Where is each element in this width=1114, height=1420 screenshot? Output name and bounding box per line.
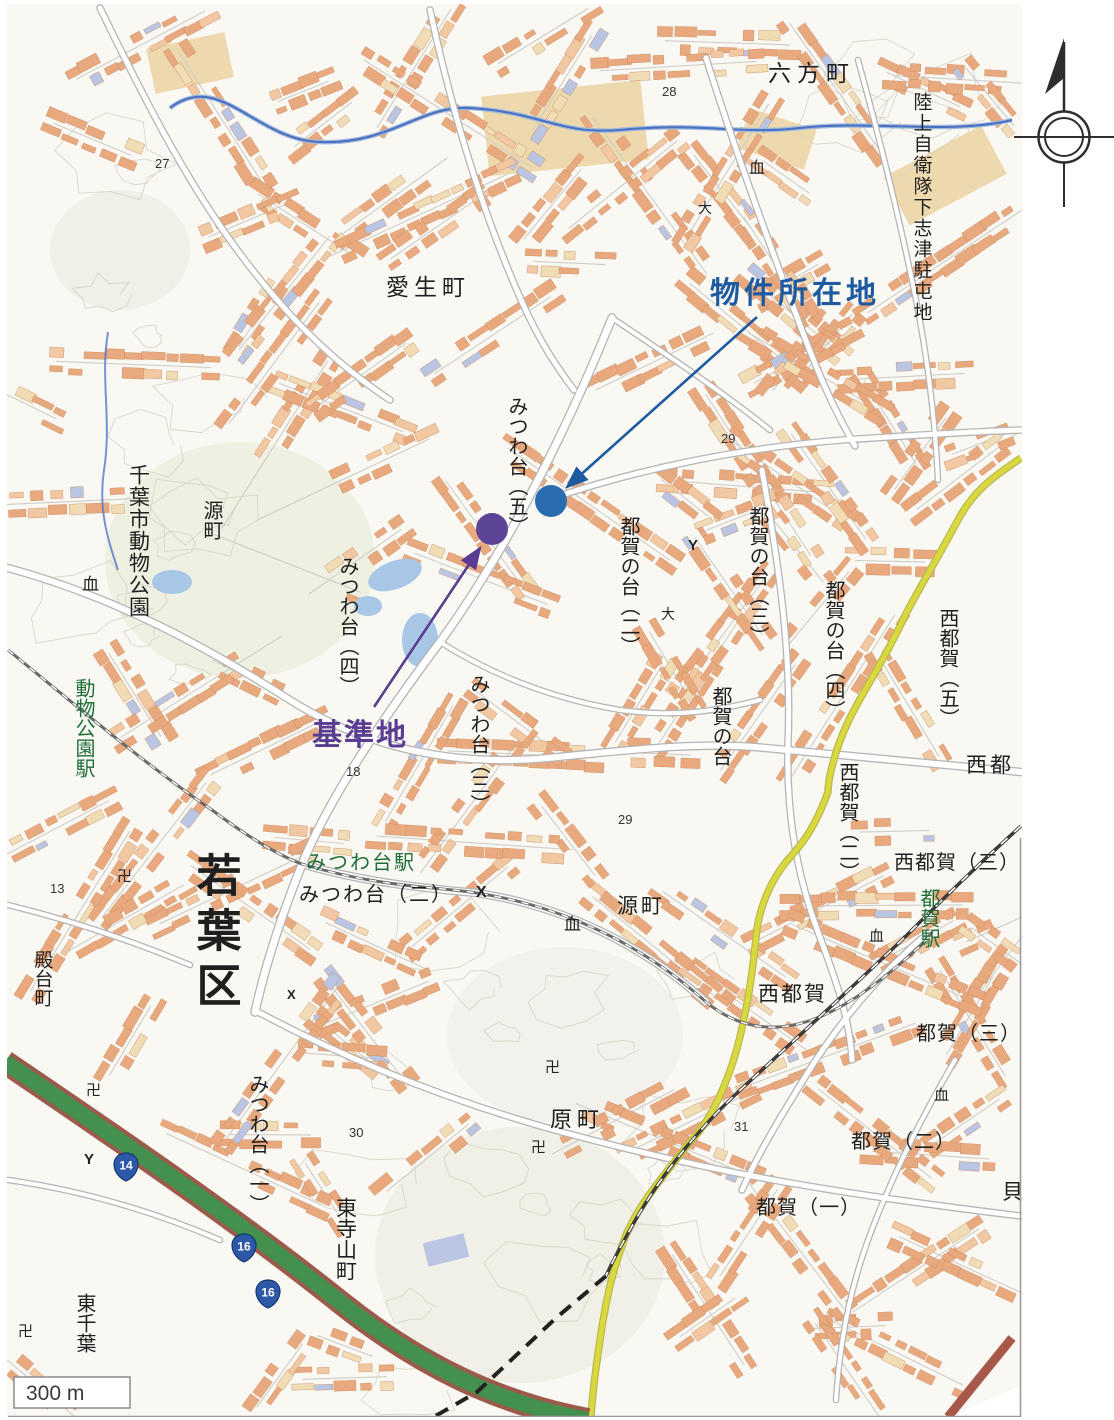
map-label: みつわ台︵一︶ [246,1074,269,1214]
map-label: 都賀駅 [917,888,940,949]
map-label: みつわ台︵三︶ [467,674,490,814]
scale-bar: 300 m [14,1377,130,1408]
map-label: 西都 [966,754,1014,777]
map-symbol: X [476,884,487,901]
map-symbol: 卍 [117,868,132,885]
map-symbol: X [287,987,296,1002]
route-number: 16 [237,1240,251,1254]
map-label: みつわ台（二） [299,883,453,906]
route-number: 14 [119,1159,133,1173]
spot-elevation: 29 [721,431,735,446]
property-location-dot [535,485,567,517]
spot-elevation: 29 [618,812,632,827]
map-label: 西都賀 [758,983,827,1006]
pond [152,570,192,594]
map-label: 西都賀︵五︶ [936,608,959,728]
map-label: 原町 [550,1107,604,1132]
map-label: 都賀（三） [916,1022,1021,1045]
map-symbol: 卍 [531,1139,546,1156]
map-symbol: Y [688,537,698,554]
map-label: 源町 [617,895,665,918]
map-label: 動物公園駅 [72,678,95,779]
spot-elevation: 28 [662,84,676,99]
north-compass-icon [1014,38,1114,207]
topographic-map: 六方町陸上自衛隊下志津駐屯地愛生町みつわ台︵五︶都賀の台︵二︶都賀の台︵三︶都賀… [0,0,1114,1420]
map-label: 西都賀（三） [894,851,1020,874]
map-symbol: 血 [749,159,765,177]
map-symbol: 血 [564,915,581,934]
spot-elevation: 27 [155,156,169,171]
spot-elevation: 30 [349,1125,363,1140]
map-symbol: 血 [869,928,884,945]
map-label: 源町 [200,500,223,540]
map-symbol: 血 [82,575,99,594]
map-page: 六方町陸上自衛隊下志津駐屯地愛生町みつわ台︵五︶都賀の台︵二︶都賀の台︵三︶都賀… [0,0,1114,1420]
map-symbol: 卍 [545,1059,560,1076]
map-label: 愛生町 [386,274,470,300]
map-label: 都賀（二） [851,1130,956,1153]
map-label: 千葉市動物公園 [127,464,151,618]
map-symbol: 血 [934,1087,949,1104]
map-label: 陸上自衛隊下志津駐屯地 [911,92,933,323]
map-label: 西都賀︵二︶ [836,762,859,882]
spot-elevation: 31 [734,1119,748,1134]
map-symbol: 卍 [86,1082,101,1099]
map-label: 若葉区 [190,852,243,1017]
map-label: 都賀の台︵二︶ [617,516,640,656]
map-label: 殿台町 [32,950,54,1007]
route-number: 16 [261,1286,275,1300]
map-label: 東寺山町 [334,1197,358,1281]
map-label: 六方町 [768,60,855,86]
map-canvas: 六方町陸上自衛隊下志津駐屯地愛生町みつわ台︵五︶都賀の台︵二︶都賀の台︵三︶都賀… [0,4,1054,1420]
map-label: 東千葉 [73,1293,96,1353]
map-label: 都賀の台︵四︶ [822,580,845,720]
benchmark-label: 基準地 [312,718,408,752]
spot-elevation: 13 [50,881,64,896]
map-label: 都賀（一） [756,1196,861,1219]
map-symbol: 大 [698,200,712,216]
map-label: みつわ台︵四︶ [336,556,359,696]
map-label: 都賀の台 [709,686,732,766]
benchmark-dot [476,513,508,545]
map-symbol: 卍 [18,1323,33,1340]
map-symbol: Y [84,1151,94,1168]
zoo-pond [354,596,382,616]
map-label: みつわ台駅 [306,851,416,874]
scale-bar-label: 300 m [26,1382,84,1405]
map-label: みつわ台︵五︶ [505,396,528,536]
property-location-label: 物件所在地 [710,277,880,310]
spot-elevation: 18 [346,764,360,779]
map-symbol: 大 [661,606,675,622]
map-label: 都賀の台︵三︶ [746,506,769,646]
